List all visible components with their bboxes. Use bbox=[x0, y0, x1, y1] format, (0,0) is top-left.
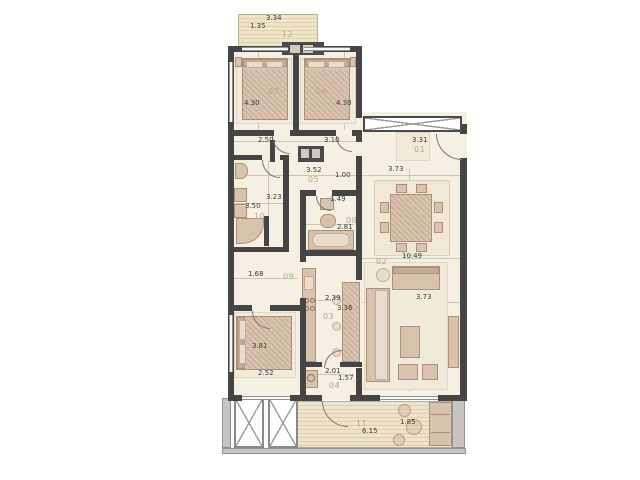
pillow bbox=[246, 61, 263, 68]
kitchen-island bbox=[342, 282, 360, 362]
sink bbox=[234, 188, 247, 202]
tv-console bbox=[448, 316, 459, 368]
room-number-05: 05 bbox=[308, 176, 319, 184]
lounger-line bbox=[431, 414, 450, 415]
pillow bbox=[308, 61, 325, 68]
room-number-07: 07 bbox=[268, 88, 279, 96]
room-number-01: 01 bbox=[414, 146, 425, 154]
dim-bath08-width: 1.49 bbox=[330, 196, 346, 203]
dining-chair bbox=[396, 243, 407, 252]
dim-bedroom06-length: 4.30 bbox=[336, 100, 352, 107]
wall-bottom bbox=[438, 395, 467, 401]
dim-bedroom07-width: 2.50 bbox=[258, 137, 274, 144]
dim-bedroom3-width: 2.52 bbox=[258, 370, 274, 377]
dining-chair bbox=[380, 222, 389, 233]
dim-bedroom07-length: 4.30 bbox=[244, 100, 260, 107]
dining-chair bbox=[396, 184, 407, 193]
wall-right-upper bbox=[356, 46, 362, 118]
window bbox=[380, 396, 438, 400]
wall-bed3-top bbox=[270, 305, 302, 311]
dim-bath10-width: 3.23 bbox=[266, 194, 282, 201]
wall-kitchen-utility bbox=[300, 362, 322, 367]
wall-right-outer bbox=[460, 158, 467, 400]
dim-terrace-depth: 1.85 bbox=[400, 419, 416, 426]
shaft-box bbox=[234, 398, 264, 448]
terrace-side-slab bbox=[452, 397, 465, 448]
dining-chair bbox=[434, 222, 443, 233]
washer-door bbox=[307, 374, 315, 382]
wall-bath10-bottom bbox=[228, 247, 289, 252]
stove-burner bbox=[310, 298, 315, 303]
shaft-box bbox=[268, 398, 298, 448]
ottoman bbox=[422, 364, 438, 380]
core-unit bbox=[290, 45, 300, 53]
wall-bed3-top bbox=[228, 305, 252, 311]
dim-terrace-length: 6.15 bbox=[362, 428, 378, 435]
wall-bath08-bottom bbox=[300, 250, 356, 256]
room-number-04: 04 bbox=[329, 382, 340, 390]
dim-balcony-depth: 1.35 bbox=[250, 23, 266, 30]
room-number-02: 02 bbox=[376, 258, 387, 266]
dim-bedroom3-length: 3.81 bbox=[252, 343, 268, 350]
wall-bath10-right bbox=[283, 155, 289, 250]
lounger-line bbox=[431, 432, 450, 433]
bathtub-basin bbox=[312, 233, 350, 247]
dim-living-length: 10.49 bbox=[402, 253, 422, 260]
wall-hall-entry bbox=[356, 136, 362, 142]
dim-utility-length: 1.57 bbox=[338, 375, 354, 382]
wall-bath10-top bbox=[228, 155, 262, 160]
window bbox=[229, 62, 233, 122]
room-number-10: 10 bbox=[254, 213, 265, 221]
wall-hall-entry bbox=[356, 156, 362, 166]
dim-kitchen-width: 2.39 bbox=[325, 295, 341, 302]
pillow bbox=[328, 61, 345, 68]
stove-burner bbox=[310, 306, 315, 311]
side-table bbox=[376, 268, 390, 282]
window bbox=[304, 47, 350, 51]
dim-corridor-width: 1.68 bbox=[248, 271, 264, 278]
room-number-06: 06 bbox=[316, 88, 327, 96]
dim-bath10-length: 3.50 bbox=[245, 203, 261, 210]
toilet bbox=[320, 214, 336, 228]
terrace-plant bbox=[398, 404, 411, 417]
wall-kitchen-utility bbox=[340, 362, 362, 367]
dim-bedroom06-width: 3.10 bbox=[324, 137, 340, 144]
bar-stool bbox=[332, 322, 341, 331]
room-number-09: 09 bbox=[283, 273, 294, 281]
dining-chair bbox=[434, 202, 443, 213]
room-number-12: 12 bbox=[282, 31, 293, 39]
wall-bottom bbox=[290, 395, 322, 401]
dining-chair bbox=[416, 243, 427, 252]
left-slab-strip bbox=[222, 398, 231, 448]
pillow bbox=[239, 320, 246, 340]
kitchen-sink bbox=[304, 276, 314, 290]
wall-bath08-top bbox=[300, 190, 316, 196]
window bbox=[242, 396, 290, 400]
entry-closet bbox=[363, 116, 462, 132]
dim-balcony-width: 3.34 bbox=[266, 15, 282, 22]
core-unit bbox=[301, 149, 309, 158]
wall-bottom bbox=[228, 395, 242, 401]
wall-bottom bbox=[350, 395, 380, 401]
pillow bbox=[266, 61, 283, 68]
floor-plan: 3.34 1.35 12 07 4.30 06 4.30 2.50 3.10 3… bbox=[0, 0, 640, 480]
terrace-plant bbox=[393, 434, 405, 446]
window bbox=[229, 315, 233, 372]
nightstand bbox=[235, 57, 242, 67]
core-unit bbox=[312, 149, 320, 158]
dim-hall-width: 3.52 bbox=[306, 167, 322, 174]
dim-kitchen-length: 3.36 bbox=[337, 305, 353, 312]
wall-kitchen-left bbox=[300, 298, 306, 397]
bed-duvet bbox=[242, 70, 288, 120]
pillow bbox=[239, 344, 246, 364]
toilet bbox=[235, 163, 248, 179]
dim-bath08-length: 2.81 bbox=[337, 224, 353, 231]
window bbox=[242, 47, 288, 51]
ottoman bbox=[398, 364, 418, 380]
wall-bedroom-divider bbox=[293, 52, 299, 133]
dim-hall-niche: 1.00 bbox=[335, 172, 351, 179]
dim-living-top-width: 3.73 bbox=[388, 166, 404, 173]
dining-chair bbox=[416, 184, 427, 193]
dim-living-width: 3.73 bbox=[416, 294, 432, 301]
dining-table bbox=[390, 194, 432, 242]
bottom-slab-band bbox=[222, 448, 466, 454]
room-number-03: 03 bbox=[323, 313, 334, 321]
dim-entrance-width: 3.31 bbox=[412, 137, 428, 144]
sun-lounger bbox=[429, 402, 452, 446]
sofa-back bbox=[393, 267, 439, 274]
coffee-table bbox=[400, 326, 420, 358]
sofa-cushions bbox=[375, 290, 388, 380]
dining-chair bbox=[380, 202, 389, 213]
